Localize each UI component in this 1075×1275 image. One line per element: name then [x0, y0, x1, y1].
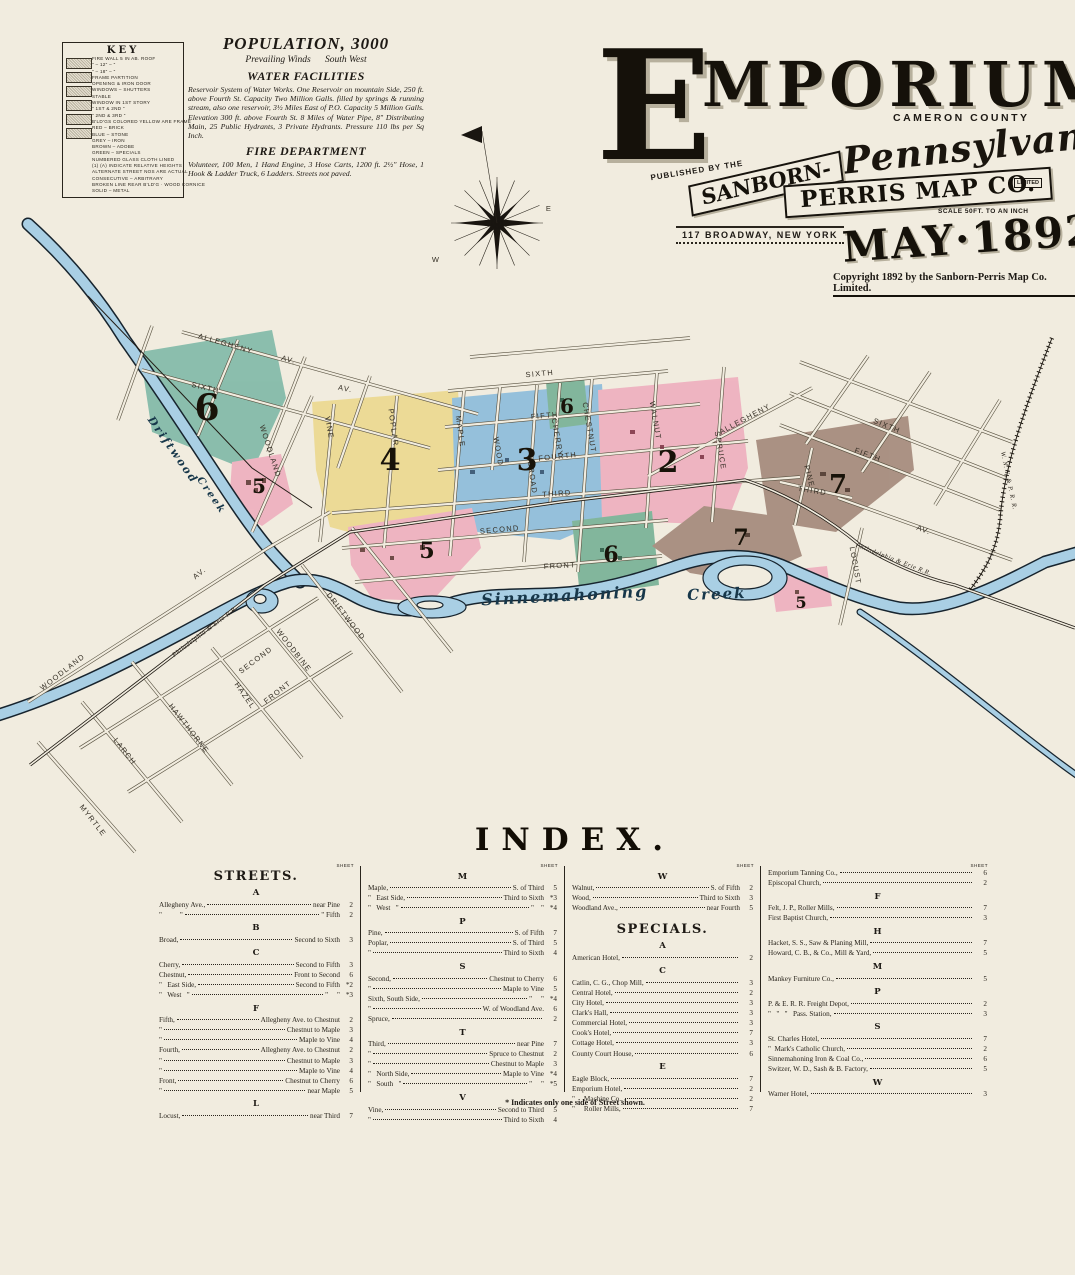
index-section-letter: W — [768, 1078, 987, 1088]
key-sample-icon — [66, 100, 92, 111]
index-entry: Second,Chestnut to Cherry6 — [368, 974, 557, 984]
district-number: 3 — [517, 443, 538, 478]
index-entry: Maple,S. of Third5 — [368, 883, 557, 893]
key-line: SOLID – METAL — [92, 188, 205, 194]
wny-p-rr — [970, 338, 1052, 590]
district-number: 6 — [560, 394, 574, 418]
creek-island-small — [254, 595, 266, 604]
street-label: AV. — [337, 383, 353, 395]
fire-department-text: Volunteer, 100 Men, 1 Hand Engine, 3 Hos… — [188, 160, 424, 178]
index-entry: Allegheny Ave.,near Pine2 — [159, 900, 353, 910]
index-specials-header: SPECIALS. — [572, 922, 753, 937]
key-sample-icon — [66, 86, 92, 97]
index-entry: Third,near Pine7 — [368, 1039, 557, 1049]
key-sample-icon — [66, 72, 92, 83]
index-entry: Wood,Third to Sixth3 — [572, 893, 753, 903]
index-section-letter: W — [572, 872, 753, 882]
sheet-mini-header: SHEET — [336, 863, 354, 868]
index-column: SHEETSTREETS.AAllegheny Ave.,near Pine2"… — [152, 866, 360, 1092]
street-label: LARCH — [112, 736, 139, 767]
street-label: AV. — [280, 353, 297, 366]
index-entry: "Spruce to Chestnut2 — [368, 1049, 557, 1059]
index-entry: P. & E. R. R. Freight Depot,2 — [768, 999, 987, 1009]
title-initial: E — [596, 30, 712, 182]
index-entry: Cherry,Second to Fifth3 — [159, 960, 353, 970]
index-entry: " " " Pass. Station,3 — [768, 1009, 987, 1019]
sanborn-map-sheet: ALLEGHENYAV.SIXTHAV.WOODLANDVINEPOPLARMA… — [0, 0, 1075, 1275]
index-entry: Chestnut,Front to Second6 — [159, 970, 353, 980]
index-entry: " East Side,Third to Sixth*3 — [368, 893, 557, 903]
publisher-address: 117 BROADWAY, NEW YORK — [676, 226, 844, 244]
index-section-letter: H — [768, 927, 987, 937]
index-streets-header: STREETS. — [159, 869, 353, 884]
index-section-letter: P — [768, 987, 987, 997]
index-entry: Walnut,S. of Fifth2 — [572, 883, 753, 893]
prevailing-winds-line: Prevailing Winds South West — [188, 55, 424, 65]
street-label: WOODBINE — [274, 627, 313, 674]
street-label: SIXTH — [525, 368, 554, 379]
index-entry: Central Hotel,2 — [572, 988, 753, 998]
street-label: W — [432, 255, 440, 264]
index-section-letter: B — [159, 923, 353, 933]
street-label: AV. — [915, 523, 932, 537]
sheet-mini-header: SHEET — [540, 863, 558, 868]
index-entry: " "" Fifth2 — [159, 910, 353, 920]
index-entry: "Maple to Vine5 — [368, 984, 557, 994]
publisher-limited-label: LIMITED — [1014, 178, 1042, 188]
index-section-letter: F — [159, 1004, 353, 1014]
key-sample-diagrams — [66, 56, 92, 195]
district-number: 5 — [795, 593, 806, 612]
district-number: 4 — [380, 443, 401, 478]
town-info-block: POPULATION, 3000 Prevailing Winds South … — [188, 34, 424, 179]
compass-rose-icon — [451, 126, 543, 269]
index-entry: Fifth,Allegheny Ave. to Chestnut2 — [159, 1015, 353, 1025]
index-entry: "Third to Sixth4 — [368, 1115, 557, 1125]
key-sample-icon — [66, 128, 92, 139]
index-section-letter: F — [768, 892, 987, 902]
railroad-label: Philadelphia & Erie R.R. — [854, 542, 932, 578]
index-section-letter: C — [572, 966, 753, 976]
district-number: 2 — [658, 445, 679, 480]
creek-island-mid — [417, 601, 443, 609]
index-entry: Sinnemahoning Iron & Coal Co.,6 — [768, 1054, 987, 1064]
index-entry: Locust,near Third7 — [159, 1111, 353, 1121]
index-entry: Broad,Second to Sixth3 — [159, 935, 353, 945]
index-entry: Commercial Hotel,3 — [572, 1018, 753, 1028]
index-column: SHEETWWalnut,S. of Fifth2Wood,Third to S… — [564, 866, 760, 1092]
index-section-letter: T — [368, 1028, 557, 1038]
district-number: 7 — [733, 525, 748, 551]
index-entry: Sixth, South Side," "*4 — [368, 994, 557, 1004]
index-entry: "Chestnut to Maple3 — [159, 1025, 353, 1035]
key-title: KEY — [66, 45, 180, 56]
title-city: MPORIUM — [702, 48, 1075, 121]
index-section-letter: A — [572, 941, 753, 951]
street-label: FRONT — [543, 560, 576, 571]
index-section-letter: A — [159, 888, 353, 898]
index-entry: " West "" "*4 — [368, 903, 557, 913]
index-entry: Catlin, C. G., Chop Mill,3 — [572, 978, 753, 988]
index-section-letter: S — [368, 962, 557, 972]
water-label: Creek — [687, 584, 747, 604]
water-label: Sinnemahoning — [481, 582, 649, 610]
key-sample-icon — [66, 58, 92, 69]
index-entry: "Third to Sixth4 — [368, 948, 557, 958]
index-entry: Felt, J. P., Roller Mills,7 — [768, 903, 987, 913]
index-entry: Spruce,2 — [368, 1014, 557, 1024]
index-section-letter: P — [368, 917, 557, 927]
street-label: AV. — [191, 565, 208, 581]
index-entry: " West "" "*3 — [159, 990, 353, 1000]
street-label: HAWTHORNE — [167, 702, 211, 755]
index-entry: "near Maple5 — [159, 1086, 353, 1096]
index-section-letter: S — [768, 1022, 987, 1032]
index-entry: "Chestnut to Maple3 — [368, 1059, 557, 1069]
fire-department-title: FIRE DEPARTMENT — [188, 144, 424, 159]
key-sample-icon — [66, 114, 92, 125]
index-entry: Mankey Furniture Co.,5 — [768, 974, 987, 984]
sheet-mini-header: SHEET — [736, 863, 754, 868]
index-entry: Emporium Tanning Co.,6 — [768, 868, 987, 878]
water-facilities-text: Reservoir System of Water Works. One Res… — [188, 85, 424, 140]
index-title: INDEX. — [155, 822, 995, 858]
index-entry: Howard, C. B., & Co., Mill & Yard,5 — [768, 948, 987, 958]
index-entry: " East Side,Second to Fifth*2 — [159, 980, 353, 990]
street-label: SECOND — [237, 644, 274, 675]
index-section-letter: M — [768, 962, 987, 972]
district-number: 6 — [194, 387, 219, 429]
index-entry: " South "" "*5 — [368, 1079, 557, 1089]
north-flag-icon — [461, 126, 482, 143]
street-label: E — [546, 204, 552, 213]
street-label: MYRTLE — [78, 803, 109, 839]
population-line: POPULATION, 3000 — [188, 34, 424, 54]
index-column: SHEETMMaple,S. of Third5" East Side,Thir… — [360, 866, 564, 1092]
map-key: KEY FIRE WALL 5 IN AB. ROOF" – 12" – "" … — [62, 42, 184, 198]
index-entry: "Maple to Vine4 — [159, 1066, 353, 1076]
index-section-letter: C — [159, 948, 353, 958]
index-entry: Front,Chestnut to Cherry6 — [159, 1076, 353, 1086]
index-entry: Episcopal Church,2 — [768, 878, 987, 888]
index-entry: Eagle Block,7 — [572, 1074, 753, 1084]
index-entry: Switzer, W. D., Sash & B. Factory,5 — [768, 1064, 987, 1074]
index-entry: Emporium Hotel,2 — [572, 1084, 753, 1094]
index-entry: Clark's Hall,3 — [572, 1008, 753, 1018]
index-table: SHEETSTREETS.AAllegheny Ave.,near Pine2"… — [152, 866, 994, 1092]
district-number: 6 — [603, 542, 618, 568]
index-entry: Poplar,S. of Third5 — [368, 938, 557, 948]
index-column: SHEETEmporium Tanning Co.,6Episcopal Chu… — [760, 866, 994, 1092]
index-entry: City Hotel,3 — [572, 998, 753, 1008]
index-entry: "Maple to Vine4 — [159, 1035, 353, 1045]
index-entry: Cook's Hotel,7 — [572, 1028, 753, 1038]
index-entry: American Hotel,2 — [572, 953, 753, 963]
index-entry: County Court House,6 — [572, 1049, 753, 1059]
index-section-letter: E — [572, 1062, 753, 1072]
index-entry: Fourth,Allegheny Ave. to Chestnut2 — [159, 1045, 353, 1055]
water-facilities-title: WATER FACILITIES — [188, 69, 424, 84]
index-entry: "Chestnut to Maple3 — [159, 1056, 353, 1066]
sheet-mini-header: SHEET — [970, 863, 988, 868]
index-entry: Cottage Hotel,3 — [572, 1038, 753, 1048]
street-label: HAZEL — [233, 680, 258, 710]
index-entry: First Baptist Church,3 — [768, 913, 987, 923]
district-number: 5 — [419, 538, 434, 564]
index-entry: "W. of Woodland Ave.6 — [368, 1004, 557, 1014]
index-entry: " North Side,Maple to Vine*4 — [368, 1069, 557, 1079]
index-entry: Woodland Ave.,near Fourth5 — [572, 903, 753, 913]
index-entry: St. Charles Hotel,7 — [768, 1034, 987, 1044]
index-entry: Pine,S. of Fifth7 — [368, 928, 557, 938]
index-entry: " Mark's Catholic Church,2 — [768, 1044, 987, 1054]
index-section-letter: M — [368, 872, 557, 882]
district-number: 5 — [252, 474, 266, 498]
district-number: 7 — [829, 470, 847, 500]
copyright-line: Copyright 1892 by the Sanborn-Perris Map… — [833, 272, 1075, 297]
index-entry: Hacket, S. S., Saw & Planing Mill,7 — [768, 938, 987, 948]
index-footnote: * Indicates only one side of Street show… — [155, 1098, 995, 1107]
